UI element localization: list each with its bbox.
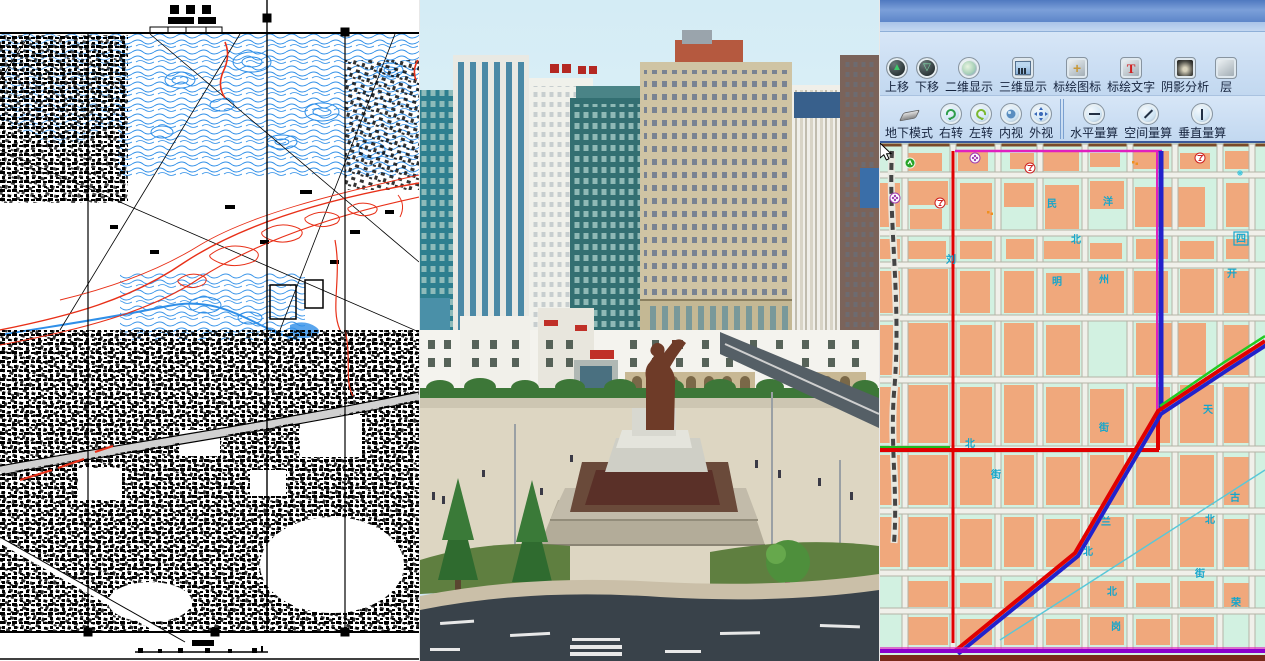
map-view[interactable]: 民洋北四刘州明开北街天街古兰北北街北岗荣: [880, 143, 1265, 661]
map-building-block: [1004, 517, 1034, 567]
red-banner: [590, 350, 614, 359]
map-building-block: [1180, 153, 1210, 169]
plot-symbol-icon: +: [1066, 57, 1088, 79]
cad-map-image: [0, 0, 419, 661]
spatial-measure-icon: [1137, 103, 1159, 125]
map-building-block: [960, 519, 992, 567]
toolbar-label: 地下模式: [885, 126, 933, 140]
map-building-block: [908, 269, 948, 313]
map-building-block: [1006, 239, 1034, 259]
map-building-block: [1090, 389, 1124, 443]
toolbar-row-1: ▲ 上移 ▽ 下移 二维显示 三维显示 + 标绘图标 T 标绘文字: [880, 32, 1265, 96]
map-building-block: [1180, 617, 1214, 645]
toolbar-button-3d-view[interactable]: 三维显示: [999, 57, 1047, 94]
map-building-block: [1090, 243, 1122, 259]
street-label: 兰: [1101, 515, 1111, 528]
street-label: 荣: [1230, 596, 1241, 609]
map-building-block: [960, 241, 992, 259]
bottom-strip: [880, 655, 1265, 661]
street-label: 古: [1230, 491, 1240, 504]
map-building-block: [1136, 387, 1170, 443]
3d-view-icon: [1012, 57, 1034, 79]
map-building-block: [1180, 581, 1214, 607]
map-building-block: [1004, 183, 1034, 207]
map-building-block: [908, 517, 948, 567]
map-building-block: [960, 325, 992, 375]
beige-tower: [640, 30, 792, 362]
map-building-block: [1046, 457, 1080, 505]
street-label: 北: [965, 437, 975, 450]
street-label: 北: [1205, 513, 1215, 526]
map-building-block: [1090, 153, 1120, 167]
underground-mode-icon: [902, 105, 917, 125]
toolbar-label: 标绘文字: [1107, 80, 1155, 94]
toolbar-button-vertical-measure[interactable]: 垂直量算: [1178, 103, 1226, 140]
map-building-block: [908, 455, 948, 505]
toolbar-label: 左转: [969, 126, 993, 140]
toolbar-row-2: 地下模式 右转 左转 内视: [880, 96, 1265, 143]
toolbar-button-move-down[interactable]: ▽ 下移: [915, 57, 939, 94]
horizontal-measure-icon: [1083, 103, 1105, 125]
map-building-block: [960, 457, 992, 505]
rotate-right-icon: [940, 103, 962, 125]
poi-glass-icon: [935, 198, 945, 208]
street-label: 北: [1071, 233, 1081, 246]
move-down-icon: ▽: [916, 57, 938, 79]
map-building-block: [1136, 323, 1206, 375]
cad-map-panel: [0, 0, 419, 661]
map-building-block: [1133, 151, 1169, 169]
toolbar-button-outer-view[interactable]: 外视: [1029, 103, 1053, 140]
street-label: 开: [1227, 268, 1237, 280]
map-building-block: [1136, 519, 1170, 567]
toolbar-button-shadow-analysis[interactable]: 阴影分析: [1161, 57, 1209, 94]
poi-flower-icon: [890, 193, 900, 203]
street-label: 岗: [1111, 620, 1121, 633]
toolbar-button-spatial-measure[interactable]: 空间量算: [1124, 103, 1172, 140]
toolbar-label: 三维显示: [999, 80, 1047, 94]
toolbar-button-inner-view[interactable]: 内视: [999, 103, 1023, 140]
map-building-block: [960, 387, 992, 443]
map-building-block: [908, 617, 948, 645]
street-label: 街: [1098, 421, 1109, 434]
toolbar-button-rotate-left[interactable]: 左转: [969, 103, 993, 140]
toolbar-button-plot-text[interactable]: T 标绘文字: [1107, 57, 1155, 94]
toolbar-label: 外视: [1029, 126, 1053, 140]
poi-flower-icon: [970, 153, 980, 163]
street-label: 街: [1194, 567, 1205, 580]
street-label: 明: [1052, 276, 1062, 288]
toolbar-button-rotate-right[interactable]: 右转: [939, 103, 963, 140]
street-label: 刘: [946, 253, 956, 266]
2d-view-icon: [958, 57, 980, 79]
map-building-block: [960, 183, 992, 229]
map-building-block: [1004, 323, 1034, 375]
toolbar-label: 空间量算: [1124, 126, 1172, 140]
3d-city-image: [420, 0, 879, 661]
map-building-block: [1224, 387, 1252, 443]
street-label: 北: [1107, 585, 1117, 598]
poi-glass-icon: [1195, 153, 1205, 163]
map-building-block: [1225, 151, 1251, 169]
map-building-block: [1046, 325, 1080, 375]
map-building-block: [1136, 619, 1170, 645]
map-building-block: [908, 241, 946, 259]
street-label: 天: [1203, 404, 1214, 416]
gis-app-panel: ▲ 上移 ▽ 下移 二维显示 三维显示 + 标绘图标 T 标绘文字: [880, 0, 1265, 661]
map-building-block: [1136, 583, 1170, 607]
poi-green-icon: [905, 158, 915, 168]
toolbar-button-plot-symbol[interactable]: + 标绘图标: [1053, 57, 1101, 94]
street-label: 州: [1098, 274, 1109, 286]
move-up-icon: ▲: [886, 57, 908, 79]
outer-view-icon: [1030, 103, 1052, 125]
map-building-block: [1224, 519, 1252, 567]
map-building-block: [1180, 269, 1214, 313]
toolbar-button-horizontal-measure[interactable]: 水平量算: [1070, 103, 1118, 140]
toolbar-label: 二维显示: [945, 80, 993, 94]
toolbar-label: 右转: [939, 126, 963, 140]
map-building-block: [1180, 241, 1214, 259]
screenshot-stage: ▲ 上移 ▽ 下移 二维显示 三维显示 + 标绘图标 T 标绘文字: [0, 0, 1265, 661]
toolbar-button-2d-view[interactable]: 二维显示: [945, 57, 993, 94]
menu-strip: [880, 22, 1265, 32]
inner-view-icon: [1000, 103, 1022, 125]
map-building-block: [1226, 183, 1252, 227]
map-building-block: [1180, 455, 1214, 505]
map-building-block: [910, 209, 942, 229]
street-label: 街: [990, 468, 1001, 481]
panel-divider: [879, 0, 880, 661]
rotate-left-icon: [970, 103, 992, 125]
toolbar-label: 层: [1220, 80, 1232, 94]
street-label: 民: [1047, 198, 1057, 210]
map-building-block: [908, 581, 948, 607]
toolbar-button-layer[interactable]: 层: [1215, 57, 1237, 94]
street-label: 四: [1236, 233, 1246, 245]
map-building-block: [1004, 455, 1034, 505]
layer-icon: [1215, 57, 1237, 79]
street-label: 洋: [1103, 195, 1113, 208]
toolbar-button-move-up[interactable]: ▲ 上移: [885, 57, 909, 94]
toolbar-label: 阴影分析: [1161, 80, 1209, 94]
street-label: 北: [1083, 545, 1093, 558]
map-building-block: [1046, 583, 1080, 607]
toolbar-separator: [1058, 99, 1065, 139]
map-building-block: [1004, 385, 1034, 443]
vertical-measure-icon: [1191, 103, 1213, 125]
map-building-block: [908, 385, 948, 443]
window-title-bar[interactable]: [880, 0, 1265, 22]
map-building-block: [1135, 187, 1205, 227]
map-building-block: [1046, 619, 1080, 645]
toolbar-label: 标绘图标: [1053, 80, 1101, 94]
map-building-block: [1004, 271, 1034, 313]
plot-text-icon: T: [1120, 57, 1142, 79]
map-building-block: [908, 323, 948, 375]
map-building-block: [1043, 151, 1079, 171]
shadow-analysis-icon: [1174, 57, 1196, 79]
poi-glass-icon: [1025, 163, 1035, 173]
map-building-block: [960, 271, 990, 313]
toolbar-label: 下移: [915, 80, 939, 94]
map-building-block: [1136, 457, 1170, 505]
3d-city-panel: [420, 0, 879, 661]
toolbar-button-underground-mode[interactable]: 地下模式: [885, 105, 933, 140]
map-building-block: [1046, 387, 1080, 443]
panel-divider: [419, 0, 420, 661]
toolbar-label: 水平量算: [1070, 126, 1118, 140]
toolbar-label: 垂直量算: [1178, 126, 1226, 140]
map-building-block: [960, 583, 992, 607]
toolbar-label: 内视: [999, 126, 1023, 140]
toolbar-label: 上移: [885, 80, 909, 94]
